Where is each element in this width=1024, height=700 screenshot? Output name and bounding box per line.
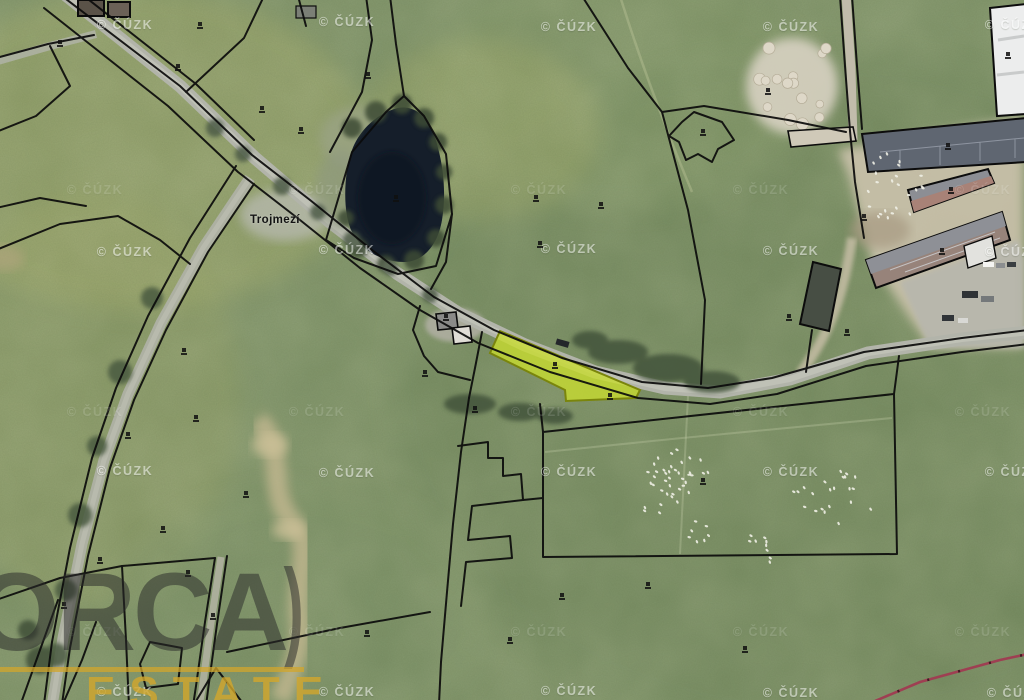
parcel-number-mark bbox=[552, 362, 558, 370]
parcel-number-mark bbox=[364, 630, 370, 638]
parcel-number-mark bbox=[700, 478, 706, 486]
parcel-number-mark bbox=[422, 370, 428, 378]
parcel-number-mark bbox=[945, 143, 951, 151]
hay-bale bbox=[816, 100, 824, 108]
hay-bale bbox=[761, 76, 770, 85]
parcel-number-mark bbox=[607, 393, 613, 401]
parcel-number-mark bbox=[559, 593, 565, 601]
parcel-number-mark bbox=[598, 202, 604, 210]
parcel-number-mark bbox=[298, 127, 304, 135]
parcel-number-mark bbox=[243, 491, 249, 499]
parcel-number-mark bbox=[175, 64, 181, 72]
logo-brand-text: ORCA) bbox=[0, 558, 310, 668]
hay-bale bbox=[815, 113, 824, 122]
house bbox=[108, 2, 130, 17]
parcel-number-mark bbox=[765, 88, 771, 96]
hay-bale bbox=[763, 103, 772, 112]
parcel-number-mark bbox=[160, 526, 166, 534]
parcel-number-mark bbox=[365, 72, 371, 80]
parcel-number-mark bbox=[1005, 52, 1011, 60]
orca-estate-logo: ORCA) ESTATE bbox=[0, 560, 354, 700]
shed bbox=[296, 6, 316, 18]
parcel-number-mark bbox=[393, 195, 399, 203]
logo-swoosh: ) bbox=[283, 554, 302, 664]
hay-bale bbox=[821, 43, 831, 53]
parcel-number-mark bbox=[507, 637, 513, 645]
parcel-number-mark bbox=[700, 129, 706, 137]
parcel-number-mark bbox=[645, 582, 651, 590]
parcel-number-mark bbox=[197, 22, 203, 30]
hay-bale bbox=[797, 93, 808, 104]
hay-bale bbox=[782, 78, 792, 88]
parcel-number-mark bbox=[537, 241, 543, 249]
parcel-number-mark bbox=[259, 106, 265, 114]
parcel-number-mark bbox=[533, 195, 539, 203]
parcel-number-mark bbox=[861, 214, 867, 222]
logo-subtitle-text: ESTATE bbox=[86, 668, 337, 700]
parcel-number-mark bbox=[125, 432, 131, 440]
parcel-number-mark bbox=[57, 40, 63, 48]
parcel-number-mark bbox=[443, 314, 449, 322]
hay-bale bbox=[772, 74, 782, 84]
parcel-number-mark bbox=[193, 415, 199, 423]
hay-bale bbox=[763, 42, 775, 54]
parcel-number-mark bbox=[472, 406, 478, 414]
parcel-number-mark bbox=[742, 646, 748, 654]
parcel-number-mark bbox=[181, 348, 187, 356]
parcel-number-mark bbox=[948, 187, 954, 195]
parcel-number-mark bbox=[844, 329, 850, 337]
cadastral-aerial-map: © ČÚZK© ČÚZK© ČÚZK© ČÚZK© ČÚZK© ČÚZK© ČÚ… bbox=[0, 0, 1024, 700]
place-label-trojmezi: Trojmezí bbox=[250, 214, 300, 226]
parcel-number-mark bbox=[939, 248, 945, 256]
white-hall bbox=[990, 4, 1024, 116]
parcel-number-mark bbox=[786, 314, 792, 322]
